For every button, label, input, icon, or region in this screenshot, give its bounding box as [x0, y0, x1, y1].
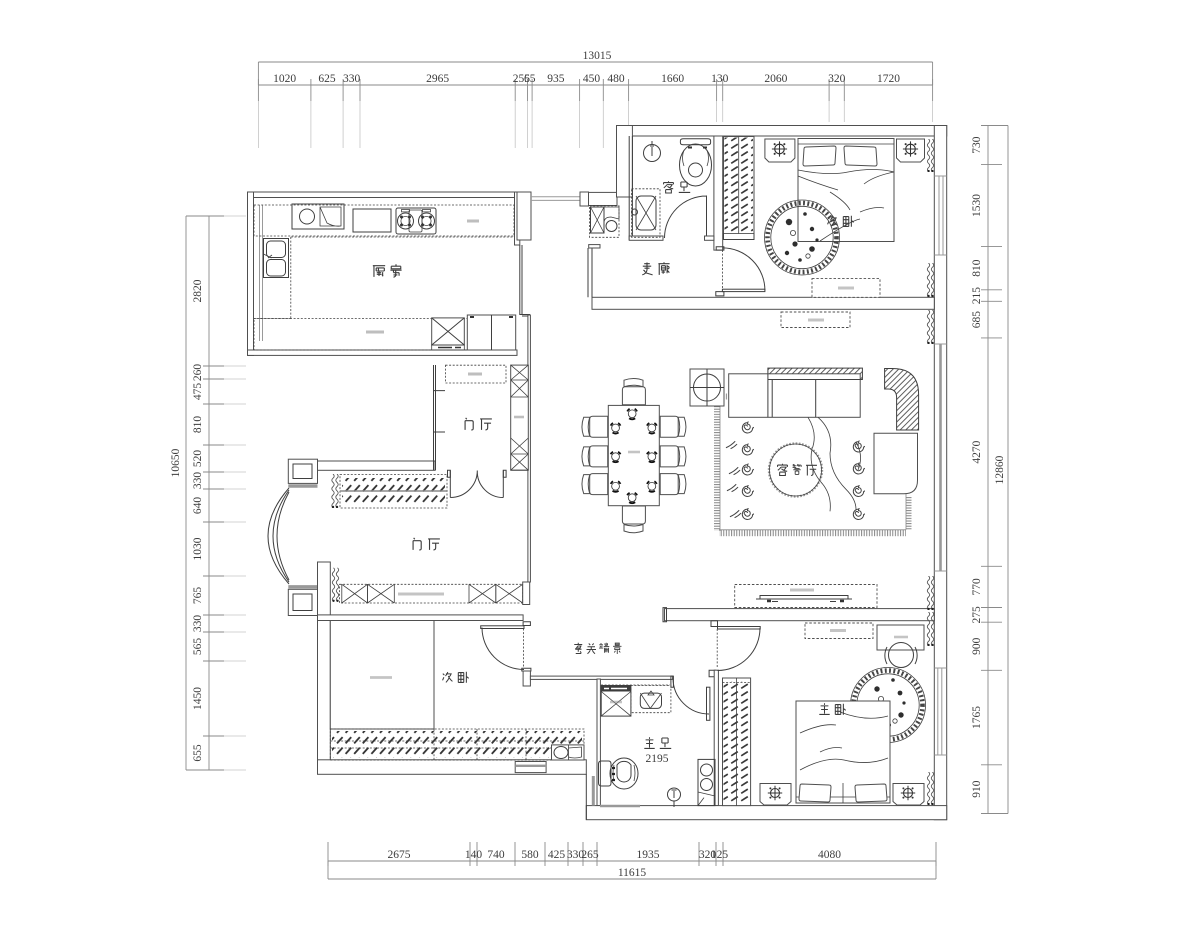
svg-text:730: 730: [971, 136, 983, 154]
svg-text:765: 765: [192, 587, 204, 605]
svg-text:265: 265: [581, 849, 599, 861]
svg-text:565: 565: [192, 638, 204, 656]
svg-text:900: 900: [971, 637, 983, 655]
svg-text:910: 910: [971, 780, 983, 798]
svg-text:13015: 13015: [583, 50, 612, 62]
svg-text:475: 475: [192, 383, 204, 401]
svg-text:1660: 1660: [661, 73, 684, 85]
svg-text:1935: 1935: [637, 849, 660, 861]
svg-text:935: 935: [547, 73, 565, 85]
svg-text:10650: 10650: [170, 448, 182, 477]
svg-text:1030: 1030: [192, 537, 204, 560]
svg-text:2965: 2965: [426, 73, 449, 85]
svg-text:1450: 1450: [192, 687, 204, 710]
svg-text:480: 480: [607, 73, 625, 85]
svg-text:580: 580: [521, 849, 539, 861]
svg-text:2675: 2675: [388, 849, 411, 861]
svg-text:2195: 2195: [646, 753, 669, 765]
svg-text:330: 330: [192, 472, 204, 490]
svg-text:1020: 1020: [273, 73, 296, 85]
svg-text:130: 130: [711, 73, 729, 85]
svg-text:260: 260: [192, 364, 204, 382]
svg-text:215: 215: [971, 287, 983, 305]
svg-text:330: 330: [343, 73, 361, 85]
svg-text:640: 640: [192, 497, 204, 515]
svg-text:11615: 11615: [618, 867, 647, 879]
svg-text:770: 770: [971, 578, 983, 596]
svg-text:1765: 1765: [971, 706, 983, 729]
svg-text:810: 810: [971, 259, 983, 277]
svg-text:275: 275: [971, 606, 983, 624]
svg-text:65: 65: [524, 73, 536, 85]
svg-text:2820: 2820: [192, 279, 204, 302]
svg-text:740: 740: [487, 849, 505, 861]
svg-text:140: 140: [465, 849, 483, 861]
svg-text:655: 655: [192, 744, 204, 762]
svg-text:685: 685: [971, 311, 983, 329]
svg-text:425: 425: [548, 849, 566, 861]
svg-text:520: 520: [192, 450, 204, 468]
svg-text:2060: 2060: [764, 73, 787, 85]
svg-text:320: 320: [828, 73, 846, 85]
svg-text:125: 125: [711, 849, 729, 861]
svg-text:12860: 12860: [994, 455, 1006, 484]
svg-text:625: 625: [318, 73, 336, 85]
svg-text:1720: 1720: [877, 73, 900, 85]
svg-text:450: 450: [583, 73, 601, 85]
svg-text:1530: 1530: [971, 194, 983, 217]
svg-text:810: 810: [192, 416, 204, 434]
svg-text:330: 330: [192, 615, 204, 633]
svg-text:4080: 4080: [818, 849, 841, 861]
svg-text:4270: 4270: [971, 440, 983, 463]
